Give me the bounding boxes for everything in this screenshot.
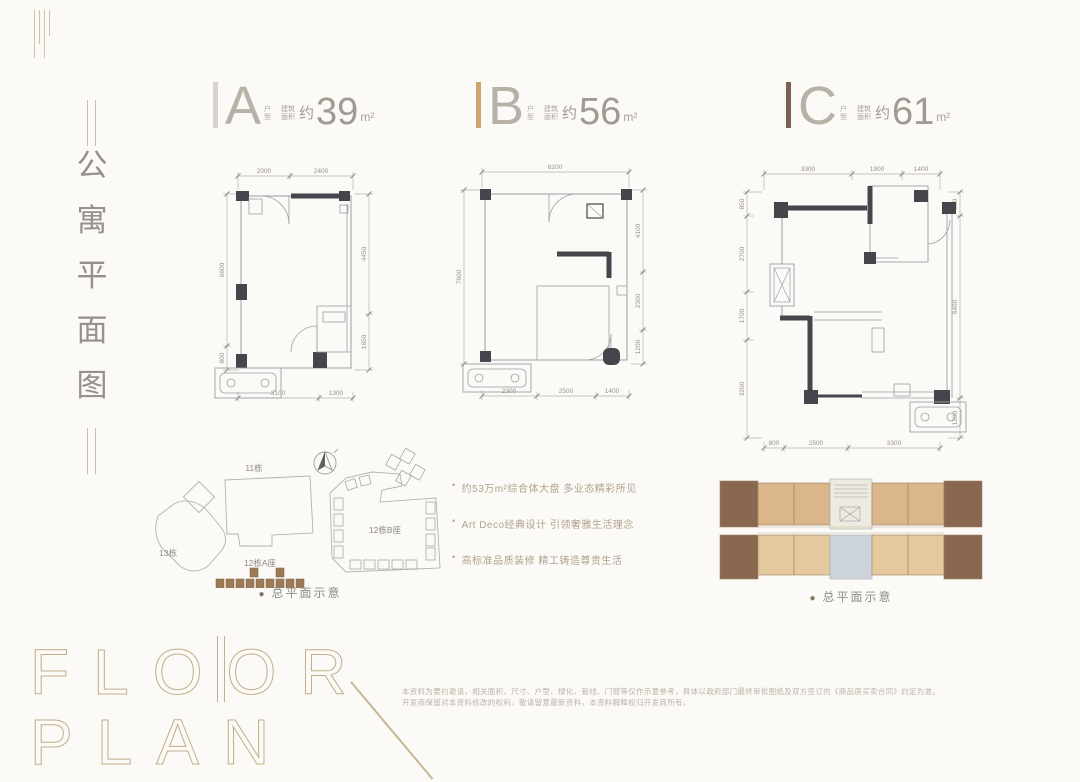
walls [480,189,632,365]
plan-b-letter: B [488,84,524,128]
decor-line [49,10,50,36]
dim-label: 1400 [914,166,929,173]
dim-label: 1400 [605,388,620,395]
floor-word: FLOOR [30,640,370,704]
dim-label: 2700 [739,246,746,261]
feature-item: • Art Deco经典设计 引领奢雅生活理念 [452,516,702,531]
accent-bar [786,82,791,128]
area-label-line: 面积 [544,114,558,122]
dim-label: 2500 [559,388,574,395]
dim-label: 6200 [548,164,563,171]
plan-b-area-value: 56 [579,96,621,128]
dim-label: 7600 [456,269,463,284]
area-label: 建筑 面积 [281,106,295,122]
disclaimer: 本资料为要约邀请，相关面积、尺寸、户型、绿化、管线、门窗等仅作示意参考，具体以政… [402,686,1062,708]
dim-label: 1200 [952,410,959,425]
plan-a-letter: A [225,84,261,128]
building-12a-label: 12栋A座 [244,558,277,568]
compass-icon [314,449,338,474]
dim-label: 1300 [329,390,344,397]
dim-label: 800 [219,352,226,363]
vertical-title: 公 寓 平 面 图 [70,150,114,425]
type-label: 户 型 [840,106,847,122]
area-label-line: 建筑 [544,106,558,114]
area-label: 建筑 面积 [857,106,871,122]
plan-b-header: B 户 型 建筑 面积 约 56 m² [476,76,637,128]
floor-plan-poster: 公 寓 平 面 图 A 户 型 建筑 面积 约 39 m² B 户 型 建筑 面… [0,0,1080,782]
door-arc [261,196,289,224]
decor-line [39,10,40,44]
floor-plan-a-drawing: 2000 2400 4450 1650 6600 800 3100 1300 [203,146,398,420]
plan-c-header: C 户 型 建筑 面积 约 61 m² [786,76,950,128]
dim-label: 1700 [739,308,746,323]
floor-plan-b-drawing: 6200 7600 4100 2300 1200 2300 2500 1400 [437,146,665,416]
type-char: 型 [840,114,847,122]
decor-line [87,428,88,474]
dim-label: 2000 [257,168,272,175]
decor-line [95,100,96,146]
title-char: 平 [77,260,108,291]
decor-line [34,10,35,58]
decor-line [224,636,225,702]
dim-label: 3100 [271,390,286,397]
door-arc [549,194,577,222]
key-plan-drawing [716,477,986,585]
type-label: 户 型 [527,106,534,122]
floor-plan-c-drawing: 3300 1900 1400 850 2700 1700 3200 850 64… [722,146,982,461]
type-char: 户 [840,106,847,114]
bullet-icon: • [452,516,456,526]
dim-label: 2300 [635,293,642,308]
caption-dot-icon: ● [809,593,817,604]
accent-bar [213,82,218,128]
site-plan-caption: ●总平面示意 [150,584,450,601]
dim-label: 4450 [361,246,368,261]
area-label-line: 建筑 [857,106,871,114]
disclaimer-line: 开发商保留对本资料修改的权利，敬请留意最新资料，本资料解释权归开发商所有。 [402,697,1062,708]
key-plan-caption: ●总平面示意 [716,588,986,605]
decor-line [44,10,45,58]
plan-c-area-value: 61 [892,96,934,128]
site-labels: 11栋 12栋A座 12栋B座 13栋 [159,463,402,568]
building-12b-label: 12栋B座 [369,525,402,535]
area-label: 建筑 面积 [544,106,558,122]
dim-label: 3200 [739,381,746,396]
plan-a-header: A 户 型 建筑 面积 约 39 m² [213,76,374,128]
type-char: 型 [264,114,271,122]
dim-label: 800 [769,440,780,447]
area-label-line: 面积 [281,114,295,122]
building-11-label: 11栋 [245,463,263,473]
plan-c-letter: C [798,84,837,128]
accent-bar [476,82,481,128]
dim-label: 4100 [635,223,642,238]
bullet-icon: • [452,552,456,562]
area-label-line: 面积 [857,114,871,122]
title-char: 面 [77,315,108,346]
area-unit: m² [360,110,374,124]
type-char: 户 [264,106,271,114]
dim-label: 3300 [801,166,816,173]
plan-word: PLAN [30,710,293,774]
caption-dot-icon: ● [258,589,266,600]
building-12b-units [334,448,435,569]
area-unit: m² [623,110,637,124]
type-char: 户 [527,106,534,114]
bathtub-icon [463,364,531,392]
dim-label: 1650 [361,334,368,349]
key-plan-units [720,479,982,579]
dim-label: 850 [739,198,746,209]
dim-label: 3300 [887,440,902,447]
approx-label: 约 [562,102,577,123]
dim-label: 2300 [502,388,517,395]
door-arc [291,326,317,352]
feature-item: • 高标准品质装修 精工铸造尊贵生活 [452,552,702,567]
dim-label: 1900 [870,166,885,173]
approx-label: 约 [299,102,314,123]
area-label-line: 建筑 [281,106,295,114]
decor-line [95,428,96,474]
dim-label: 1200 [635,339,642,354]
site-outlines [156,472,440,572]
title-char: 图 [77,370,108,401]
dim-label: 6600 [219,262,226,277]
decor-line [217,636,218,702]
building-13-label: 13栋 [159,548,177,558]
dim-label: 2500 [809,440,824,447]
title-char: 公 [77,150,108,181]
bullet-icon: • [452,480,456,490]
dimension-lines [460,168,647,400]
approx-label: 约 [875,102,890,123]
feature-item: • 约53万m²综合体大盘 多业态精彩所见 [452,480,702,495]
area-unit: m² [936,110,950,124]
type-char: 型 [527,114,534,122]
dim-label: 6400 [952,299,959,314]
type-label: 户 型 [264,106,271,122]
site-plan-drawing: 11栋 12栋A座 12栋B座 13栋 [150,438,450,588]
disclaimer-line: 本资料为要约邀请，相关面积、尺寸、户型、绿化、管线、门窗等仅作示意参考，具体以政… [402,686,1062,697]
decor-line [87,100,88,146]
dim-label: 2400 [314,168,329,175]
features-list: • 约53万m²综合体大盘 多业态精彩所见 • Art Deco经典设计 引领奢… [452,480,702,588]
walls [770,186,956,404]
walls [236,191,351,368]
plan-a-area-value: 39 [316,96,358,128]
title-char: 寓 [77,205,108,236]
